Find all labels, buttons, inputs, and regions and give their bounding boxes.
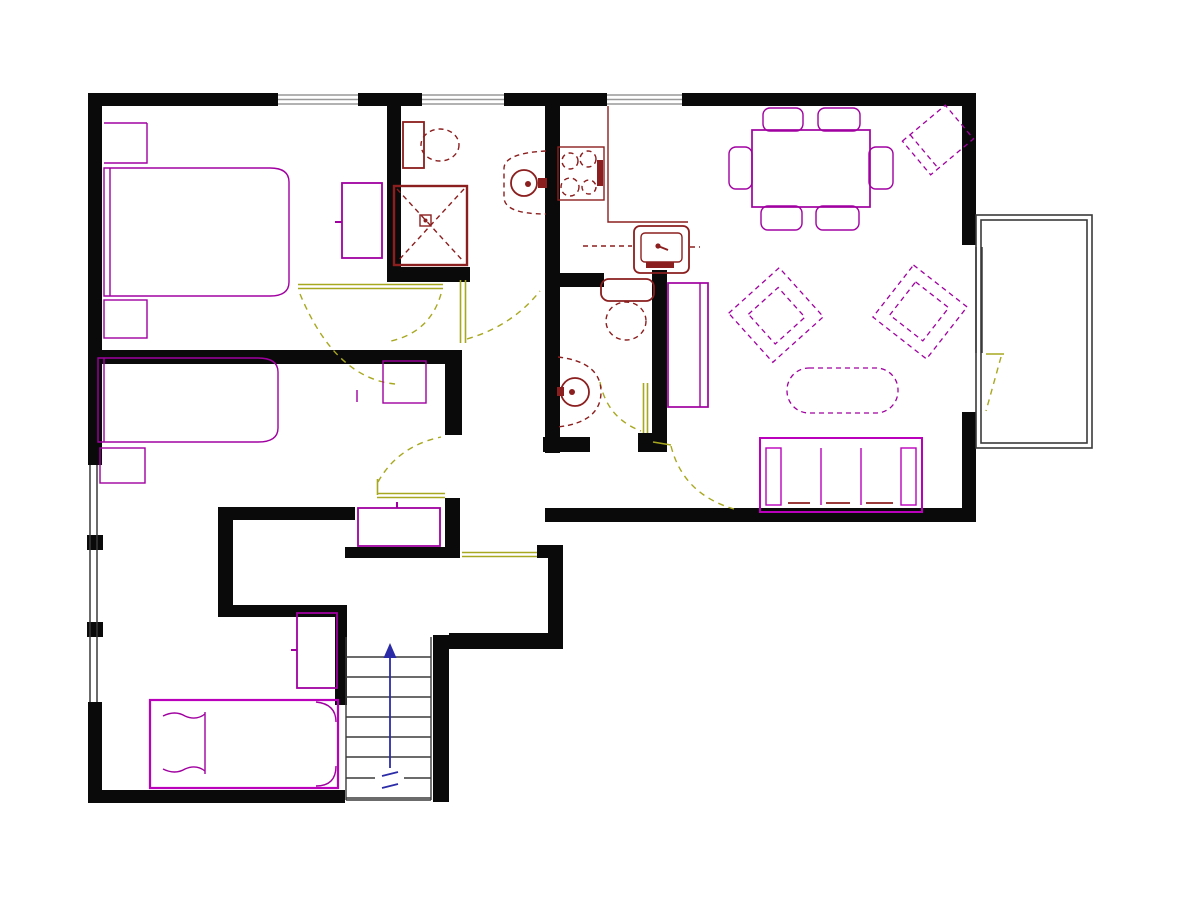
bedroom1-bottom-wall xyxy=(88,350,462,364)
single-bed-lower xyxy=(150,700,338,788)
bedroom2-door xyxy=(377,437,445,498)
dining-chair xyxy=(816,206,859,230)
armchair xyxy=(729,268,824,363)
dining-chair xyxy=(818,108,860,131)
right-wall xyxy=(962,412,976,522)
wc-bottom-wall xyxy=(543,437,590,452)
sofa xyxy=(760,438,922,512)
closet-top-wall xyxy=(218,507,355,520)
staircase xyxy=(346,637,431,800)
closet-bottom-wall xyxy=(218,605,347,617)
window-top-1 xyxy=(278,95,358,104)
stair-side-wall xyxy=(433,635,449,802)
wc-sink xyxy=(557,357,601,427)
left-wall xyxy=(88,702,102,803)
single-bed xyxy=(98,358,278,442)
stair-up-arrow xyxy=(382,643,398,788)
toilet xyxy=(601,279,654,340)
bedroom2-right-wall xyxy=(445,350,462,435)
wc-door-post xyxy=(638,433,667,452)
hall-shelf xyxy=(358,502,440,546)
bottom-wall xyxy=(88,790,345,803)
top-wall xyxy=(682,93,976,106)
armchair xyxy=(873,265,967,359)
nightstand xyxy=(104,123,147,163)
landing-bottom-wall xyxy=(449,633,563,649)
corridor-door xyxy=(462,553,537,557)
window-top-2 xyxy=(422,95,504,104)
living-room-door xyxy=(653,442,734,509)
double-bed xyxy=(104,168,289,296)
top-wall xyxy=(504,93,607,106)
nightstand xyxy=(104,300,147,338)
kitchen-sink xyxy=(634,226,689,273)
dresser xyxy=(335,183,382,258)
bathroom-bottom-wall xyxy=(387,267,470,282)
desk xyxy=(357,361,426,403)
top-wall xyxy=(358,93,422,106)
balcony xyxy=(976,215,1092,448)
dining-chair xyxy=(729,147,752,189)
dining-chair xyxy=(761,206,802,230)
closet-left-wall xyxy=(218,507,233,617)
dining-chair xyxy=(763,108,803,131)
kitchen-door xyxy=(461,280,541,343)
wc-door xyxy=(600,382,648,433)
wardrobe xyxy=(291,613,337,688)
nightstand xyxy=(100,448,145,483)
walls xyxy=(87,93,976,803)
toilet xyxy=(403,122,459,168)
entry-post xyxy=(537,545,563,558)
bathroom-sink xyxy=(504,151,547,214)
shower xyxy=(394,186,467,265)
coffee-table xyxy=(787,368,898,413)
bookcase xyxy=(668,283,708,407)
balcony-door xyxy=(986,354,1004,411)
wc-top-wall xyxy=(559,273,604,287)
left-wall xyxy=(88,93,102,465)
dining-chair xyxy=(869,147,893,189)
floor-plan xyxy=(0,0,1200,900)
floor-plan-canvas xyxy=(0,0,1200,900)
window-top-3 xyxy=(607,95,682,104)
right-wall xyxy=(962,93,976,245)
furniture xyxy=(98,105,974,788)
hall-double-door xyxy=(298,285,443,385)
hall-wall xyxy=(548,557,563,635)
window-left xyxy=(90,465,97,702)
stove xyxy=(558,147,604,200)
top-wall xyxy=(90,93,278,106)
dining-table xyxy=(752,130,870,207)
niche-bottom-wall xyxy=(345,547,460,558)
